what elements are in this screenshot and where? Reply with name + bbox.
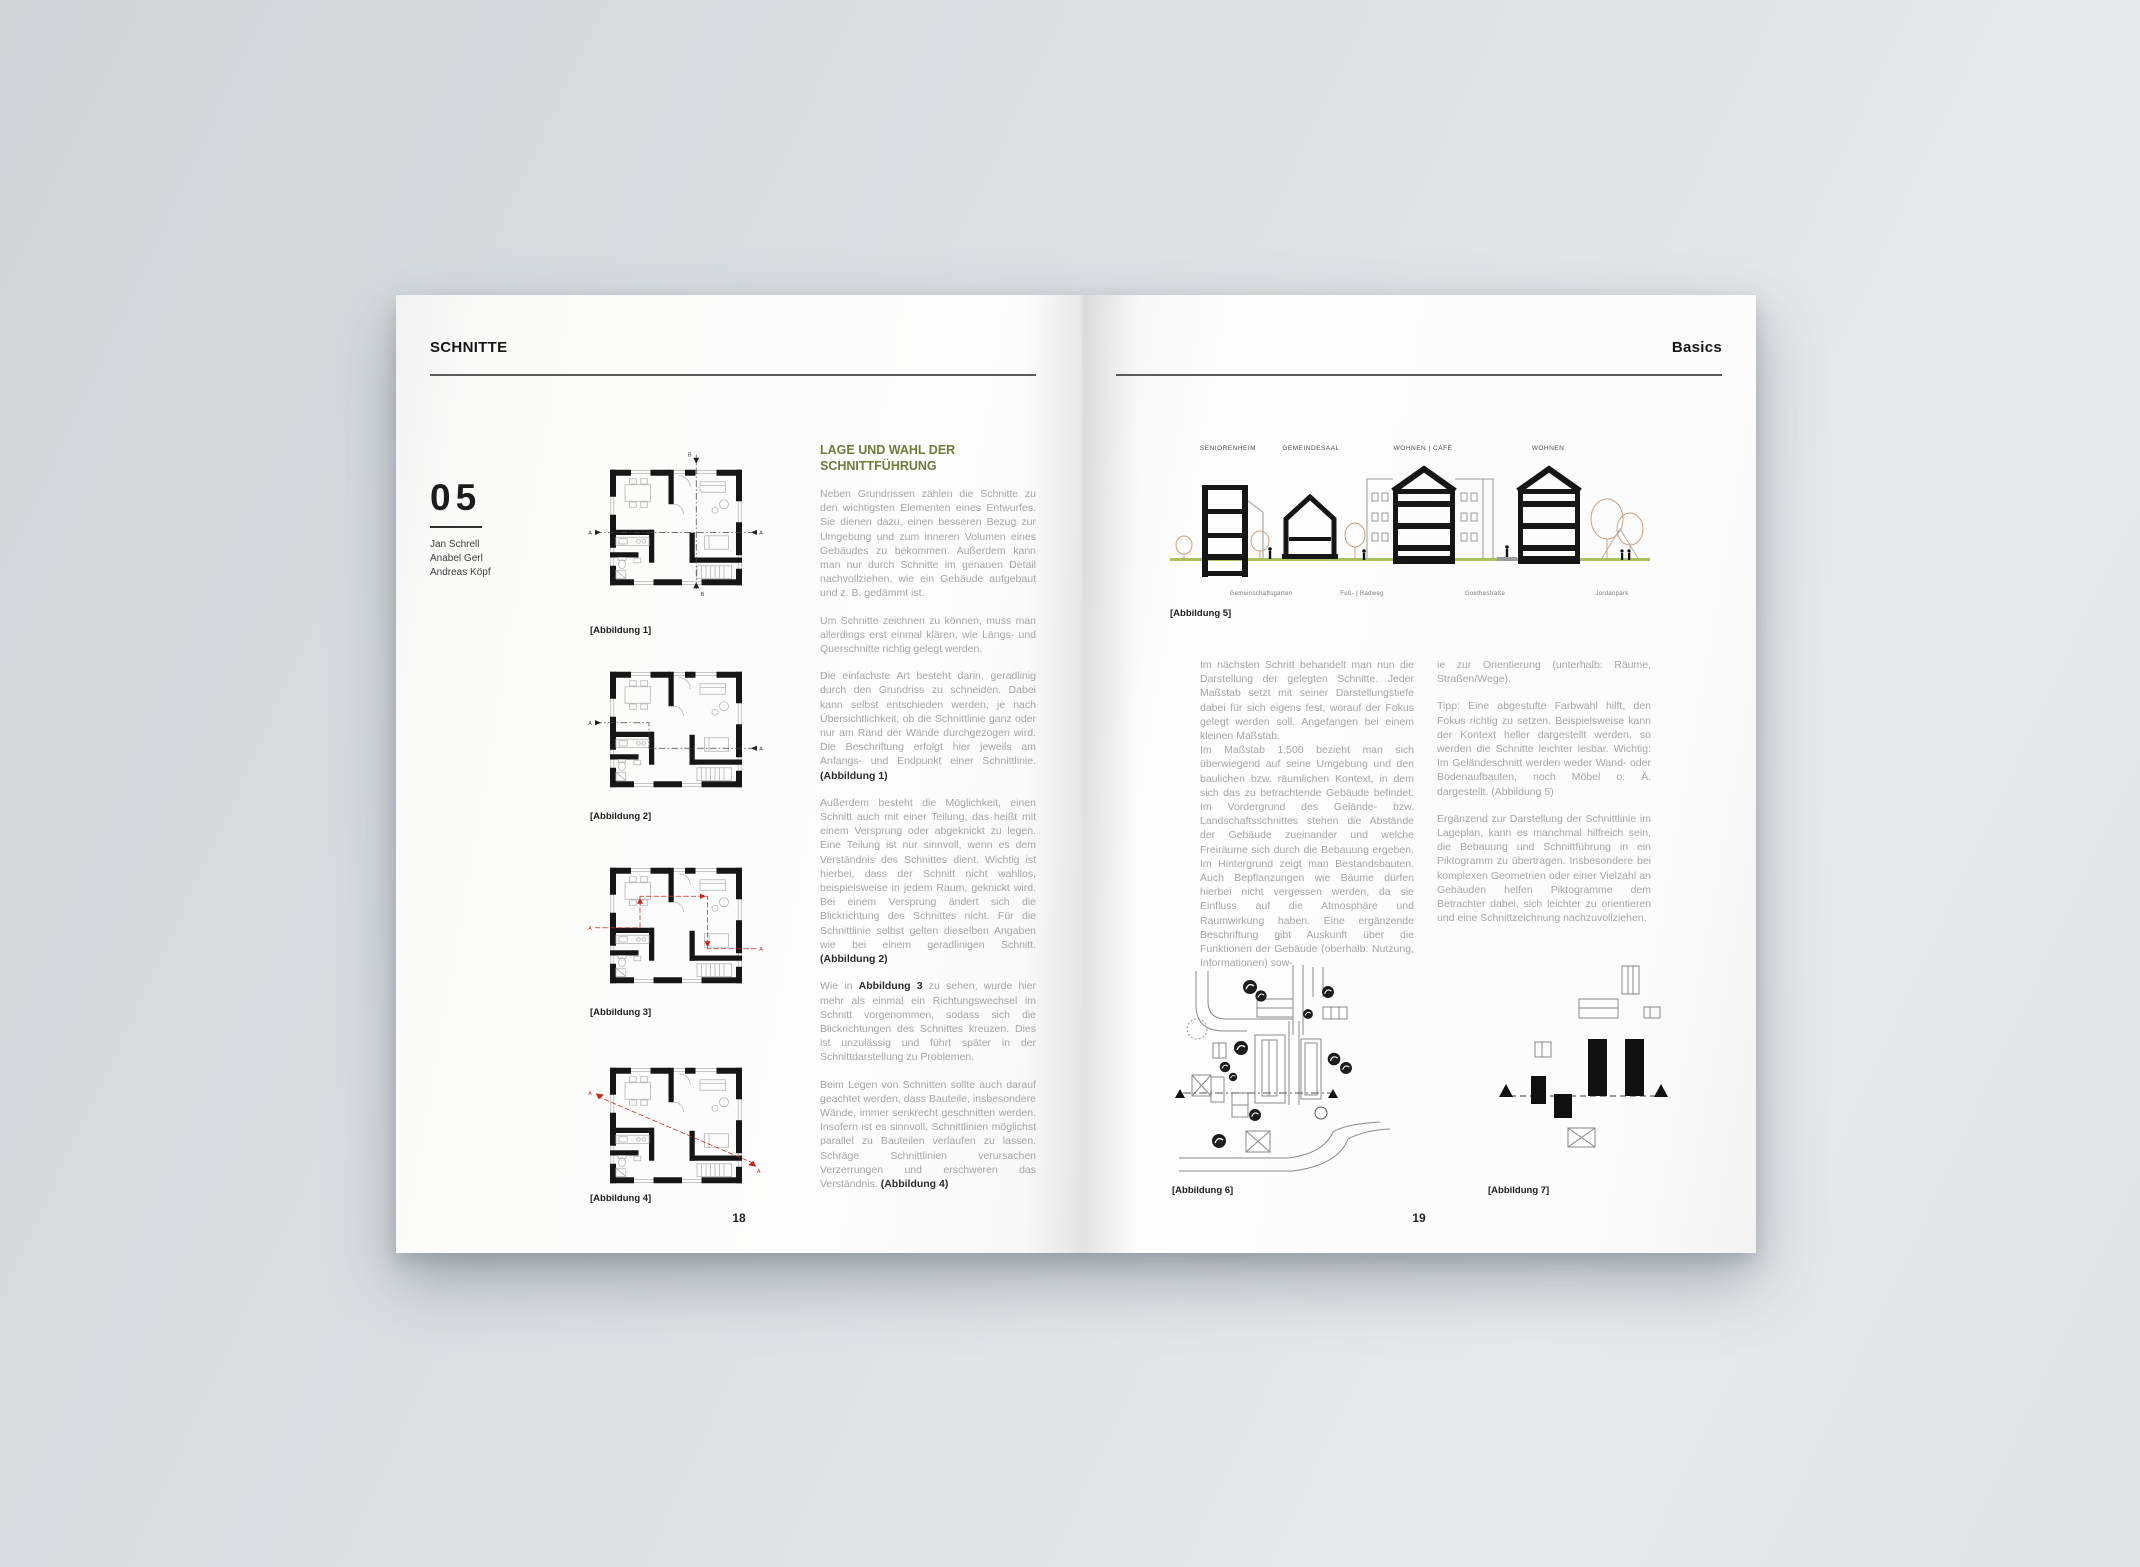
header-rule-left bbox=[430, 374, 1036, 376]
chapter-block: 05 Jan Schrell Anabel Gerl Andreas Köpf bbox=[430, 477, 491, 580]
floor-plan-figure-4: A A bbox=[586, 1043, 766, 1205]
street-label: Gemeinschaftsgarten bbox=[1230, 591, 1293, 597]
svg-text:A: A bbox=[588, 1091, 592, 1097]
street-section-figure-5: SENIORENHEIM GEMEINDESAAL WOHNEN | CAFÉ … bbox=[1170, 445, 1650, 607]
text-column-right: ie zur Orientierung (unterhalb: Räume, S… bbox=[1437, 658, 1651, 938]
figure-caption: [Abbildung 1] bbox=[590, 625, 651, 636]
header-rule-right bbox=[1116, 374, 1722, 376]
tree bbox=[1176, 536, 1192, 561]
figure-caption: [Abbildung 2] bbox=[590, 811, 651, 822]
building-label: WOHNEN | CAFÉ bbox=[1394, 445, 1453, 452]
floor-plan-figure-1: A A B B bbox=[586, 445, 766, 607]
svg-text:A: A bbox=[588, 926, 592, 932]
building-label: WOHNEN bbox=[1532, 445, 1565, 452]
svg-text:A: A bbox=[759, 747, 763, 753]
svg-text:A: A bbox=[757, 1169, 761, 1175]
person bbox=[1268, 547, 1272, 559]
section-elevation-drawing bbox=[1170, 457, 1650, 587]
paragraph: Die einfachste Art besteht darin, geradl… bbox=[820, 669, 1036, 783]
chapter-number: 05 bbox=[430, 477, 491, 519]
section-marker bbox=[1654, 1084, 1668, 1097]
chapter-underline bbox=[430, 526, 482, 528]
building-seniorenheim bbox=[1202, 485, 1248, 577]
page-number-left: 18 bbox=[396, 1211, 1082, 1225]
page-18: SCHNITTE 05 Jan Schrell Anabel Gerl Andr… bbox=[396, 295, 1082, 1253]
page-header-left: SCHNITTE bbox=[430, 339, 507, 356]
paragraph: Neben Grundrissen zählen die Schnitte zu… bbox=[820, 487, 1036, 601]
paragraph: ie zur Orientierung (unterhalb: Räume, S… bbox=[1437, 658, 1651, 686]
desk-background: SCHNITTE 05 Jan Schrell Anabel Gerl Andr… bbox=[0, 0, 2140, 1567]
building-wohnen bbox=[1518, 469, 1580, 564]
building-gemeindesaal bbox=[1282, 497, 1338, 559]
svg-text:A: A bbox=[588, 530, 592, 536]
buildings bbox=[1192, 999, 1347, 1152]
svg-text:B: B bbox=[701, 592, 705, 598]
article-heading: LAGE UND WAHL DER SCHNITTFÜHRUNG bbox=[820, 442, 1036, 474]
facade-wing-right bbox=[1455, 479, 1493, 558]
cut-buildings bbox=[1531, 1039, 1644, 1118]
figure-reference: (Abbildung 1) bbox=[820, 770, 888, 782]
figure-caption: [Abbildung 3] bbox=[590, 1007, 651, 1018]
figure-caption: [Abbildung 6] bbox=[1172, 1185, 1233, 1196]
park-trees bbox=[1591, 499, 1643, 561]
floor-plan-figure-3: A A bbox=[586, 843, 766, 1005]
street-label: Jordanpark bbox=[1595, 591, 1628, 597]
paragraph: Wie in Abbildung 3 zu sehen, wurde hier … bbox=[820, 979, 1036, 1064]
figure-reference: (Abbildung 2) bbox=[820, 953, 888, 965]
building-label: SENIORENHEIM bbox=[1200, 445, 1256, 452]
page-number-right: 19 bbox=[1082, 1211, 1756, 1225]
svg-text:B: B bbox=[688, 452, 692, 458]
text-column-left: Im nächsten Schritt behandelt man nun di… bbox=[1200, 658, 1414, 970]
street-pavement bbox=[1497, 557, 1517, 561]
article-column: LAGE UND WAHL DER SCHNITTFÜHRUNG Neben G… bbox=[820, 442, 1036, 1204]
author: Jan Schrell bbox=[430, 538, 491, 552]
figure-caption: [Abbildung 5] bbox=[1170, 608, 1231, 619]
figure-caption: [Abbildung 7] bbox=[1488, 1185, 1549, 1196]
tree bbox=[1345, 523, 1365, 561]
paragraph: Im nächsten Schritt behandelt man nun di… bbox=[1200, 658, 1414, 743]
svg-text:A: A bbox=[588, 721, 592, 727]
author-list: Jan Schrell Anabel Gerl Andreas Köpf bbox=[430, 538, 491, 580]
paragraph: Im Maßstab 1:500 bezieht man sich überwi… bbox=[1200, 743, 1414, 970]
author: Anabel Gerl bbox=[430, 552, 491, 566]
magazine-spread: SCHNITTE 05 Jan Schrell Anabel Gerl Andr… bbox=[396, 295, 1756, 1253]
street-label: Fuß- | Radweg bbox=[1340, 591, 1383, 597]
section-marker bbox=[1499, 1084, 1513, 1097]
page-header-right: Basics bbox=[1116, 339, 1722, 356]
street-label: Goethestraße bbox=[1465, 591, 1505, 597]
figure-caption: [Abbildung 4] bbox=[590, 1193, 651, 1204]
floor-plan-figure-2: A A bbox=[586, 647, 766, 809]
paragraph: Beim Legen von Schnitten sollte auch dar… bbox=[820, 1078, 1036, 1192]
page-19: Basics SENIORENHEIM GEMEINDESAAL WOHNEN … bbox=[1082, 295, 1756, 1253]
building-wohnen-cafe bbox=[1393, 469, 1455, 564]
building-label: GEMEINDESAAL bbox=[1282, 445, 1339, 452]
facade-wing-left bbox=[1367, 479, 1393, 558]
paragraph: Ergänzend zur Darstellung der Schnittlin… bbox=[1437, 812, 1651, 926]
paragraph: Außerdem besteht die Möglichkeit, einen … bbox=[820, 796, 1036, 966]
pictogram-figure-7 bbox=[1472, 950, 1702, 1180]
person bbox=[1505, 545, 1509, 557]
paragraph: Um Schnitte zeichnen zu können, muss man… bbox=[820, 614, 1036, 657]
svg-text:A: A bbox=[759, 947, 763, 953]
paragraph: Tipp: Eine abgestufte Farbwahl hilft, de… bbox=[1437, 699, 1651, 798]
site-plan-figure-6 bbox=[1175, 955, 1440, 1180]
tree bbox=[1251, 531, 1269, 561]
figure-reference: Abbildung 3 bbox=[859, 980, 923, 992]
author: Andreas Köpf bbox=[430, 566, 491, 580]
svg-text:A: A bbox=[759, 530, 763, 536]
figure-reference: (Abbildung 4) bbox=[881, 1178, 949, 1190]
